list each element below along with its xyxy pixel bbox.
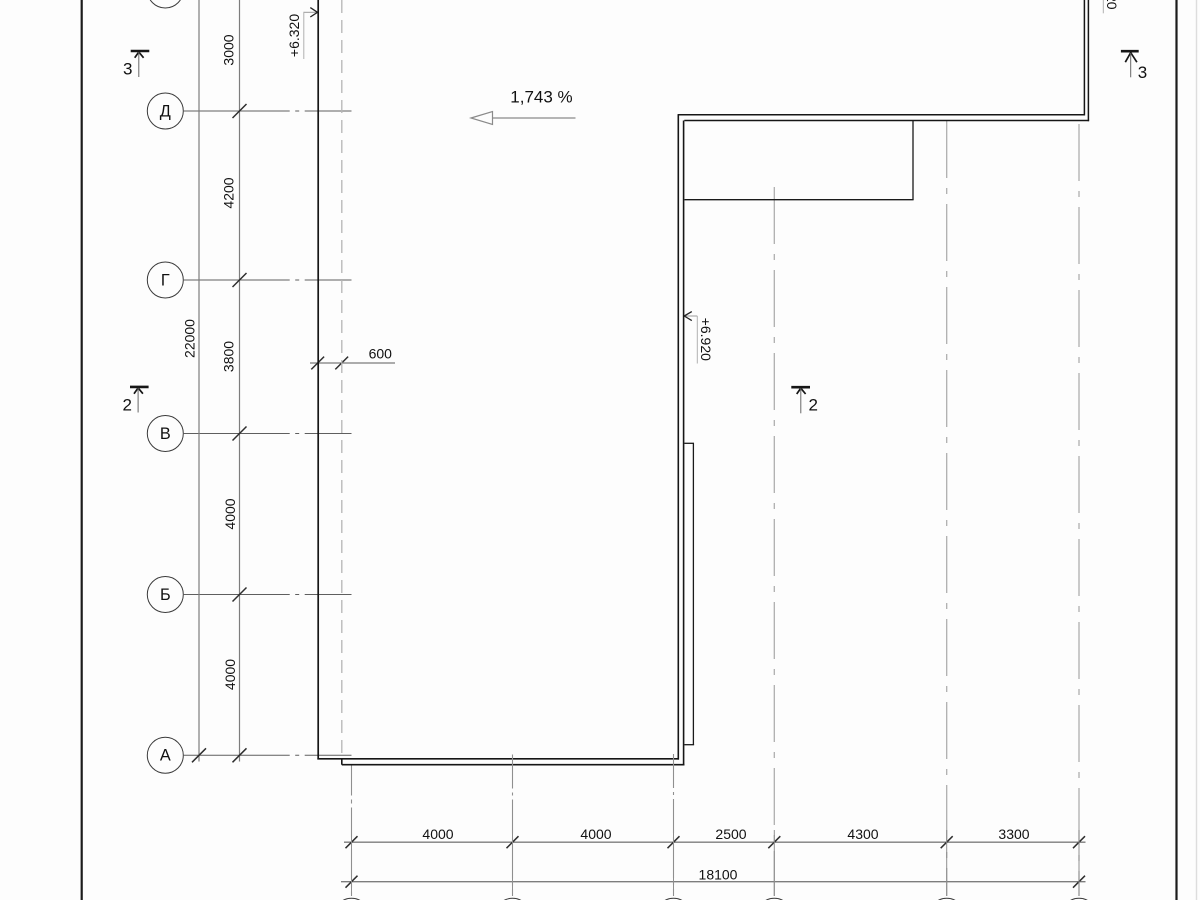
svg-text:3: 3: [1138, 63, 1147, 82]
svg-text:3: 3: [123, 60, 132, 79]
svg-text:600: 600: [369, 346, 393, 362]
svg-text:+6.920: +6.920: [698, 318, 714, 361]
svg-text:4000: 4000: [222, 498, 238, 529]
svg-text:22000: 22000: [182, 319, 198, 358]
svg-text:1,743 %: 1,743 %: [510, 88, 572, 107]
svg-text:2: 2: [809, 396, 818, 415]
svg-text:Д: Д: [160, 102, 171, 120]
svg-text:4200: 4200: [221, 177, 237, 208]
svg-text:3000: 3000: [221, 34, 237, 65]
svg-text:2: 2: [123, 396, 132, 415]
svg-text:2500: 2500: [715, 826, 746, 842]
svg-text:18100: 18100: [699, 867, 738, 883]
svg-text:Б: Б: [160, 586, 171, 604]
svg-text:3300: 3300: [998, 826, 1029, 842]
svg-text:4000: 4000: [580, 826, 611, 842]
svg-text:3800: 3800: [221, 341, 237, 372]
svg-text:4000: 4000: [422, 826, 453, 842]
svg-text:+6.320: +6.320: [286, 14, 302, 57]
svg-text:Г: Г: [161, 271, 170, 289]
svg-text:+6.920: +6.920: [1104, 0, 1120, 10]
svg-text:В: В: [160, 425, 171, 443]
svg-text:4300: 4300: [847, 826, 878, 842]
svg-text:А: А: [160, 747, 171, 765]
svg-text:4000: 4000: [222, 659, 238, 690]
